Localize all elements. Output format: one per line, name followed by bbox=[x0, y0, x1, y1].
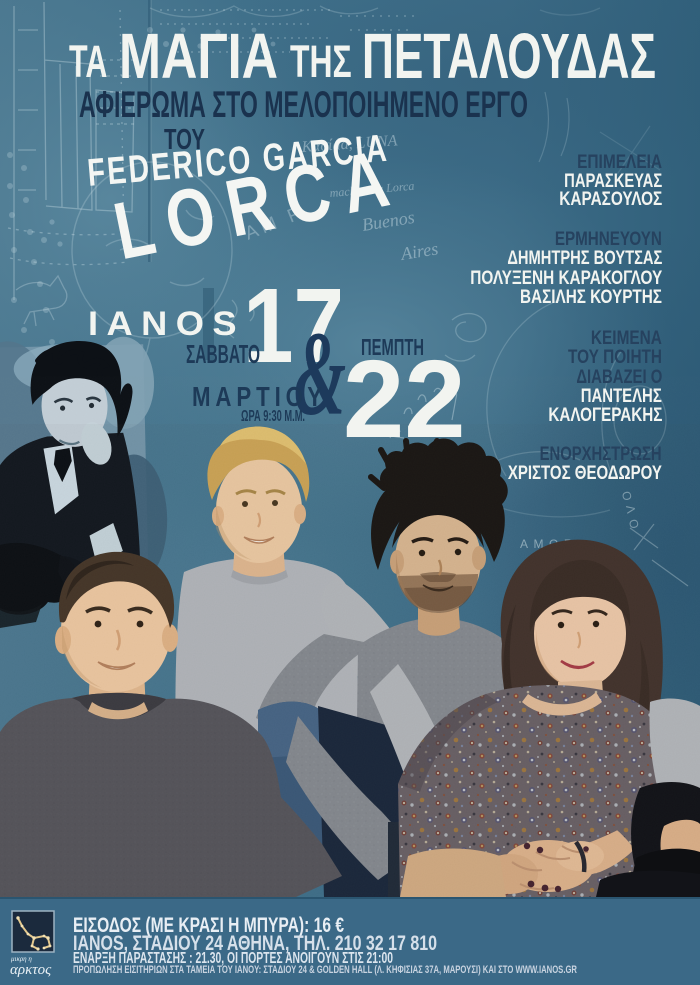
svg-text:αρκτος: αρκτος bbox=[10, 962, 52, 978]
